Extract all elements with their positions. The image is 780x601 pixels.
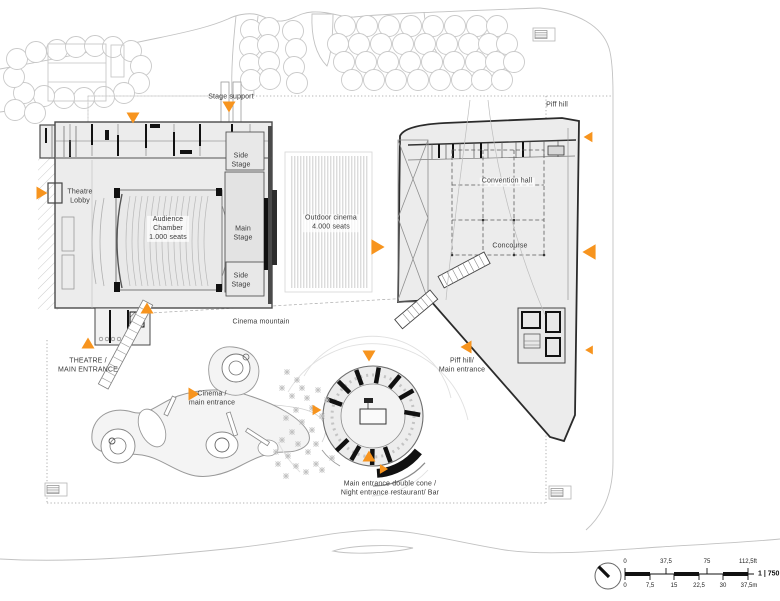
scale-m-tick: 15 [671,583,678,589]
scale-m-tick: 7,5 [646,583,654,589]
label-theatre-main-entrance: THEATRE / MAIN ENTRANCE [58,357,118,375]
scale-ratio: 1 | 750 [758,571,779,578]
label-side-stage-bottom: Side Stage [231,272,250,290]
north-arrow-icon [595,563,621,589]
trees [4,16,525,124]
scale-ft-tick: 37,5 [660,559,672,565]
piff-hill-building [395,100,579,441]
entrance-marker [82,338,95,349]
label-cinema-main-entrance: Cinema / main entrance [189,390,235,408]
scale-m-tick: 30 [720,583,727,589]
grate-bottom-left [45,483,67,496]
entrance-marker [582,244,595,260]
outdoor-cinema-screen [272,190,277,265]
label-piff-hill-entrance: Piff hill/ Main entrance [439,357,485,375]
label-convention-hall: Convention hall [480,178,535,187]
label-double-cone: Main entrance double cone / Night entran… [341,480,439,498]
site-plan: Stage support Piff hill Theatre Lobby Si… [0,0,780,601]
label-side-stage-top: Side Stage [231,152,250,170]
piff-south-rooms [518,308,565,363]
site-plan-drawing [0,0,780,601]
grate-top-right [533,28,555,41]
scale-m-tick: 37,5m [741,583,758,589]
scale-m-tick: 0 [623,583,626,589]
label-concourse: Concourse [492,243,527,252]
entrance-marker [371,239,384,255]
label-theatre-lobby: Theatre Lobby [67,188,92,206]
scale-bar [625,568,754,580]
scale-m-tick: 22,5 [693,583,705,589]
entrance-marker [584,132,593,142]
label-audience-chamber: Audience Chamber 1.000 seats [147,216,189,242]
entrance-marker [363,351,376,362]
grate-bottom-right [549,486,571,499]
scale-ft-tick: 75 [704,559,711,565]
label-cinema-mountain: Cinema mountain [232,319,289,328]
double-cone-building [322,366,425,486]
entrance-marker [585,345,593,354]
label-main-stage: Main Stage [233,225,252,243]
scale-ft-tick: 0 [623,559,626,565]
scale-ft-tick: 112,5ft [739,559,757,565]
label-piff-hill: Piff hill [546,102,568,111]
label-stage-support: Stage support [208,94,254,103]
label-outdoor-cinema: Outdoor cinema 4.000 seats [303,214,359,232]
